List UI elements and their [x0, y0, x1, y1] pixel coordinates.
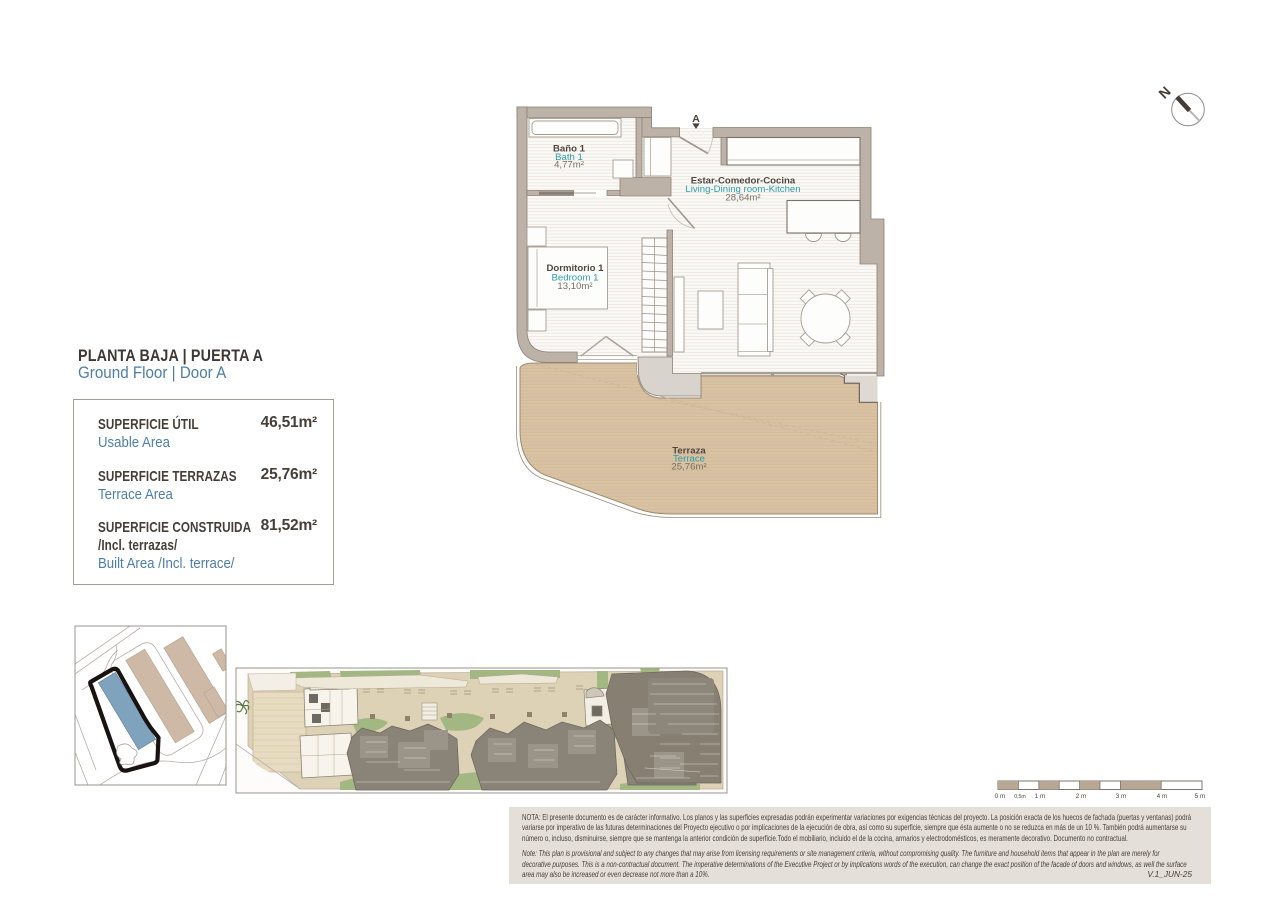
- svg-text:0 m: 0 m: [995, 793, 1006, 800]
- svg-text:25,76m²: 25,76m²: [671, 462, 707, 473]
- svg-text:4 m: 4 m: [1157, 793, 1168, 800]
- svg-text:2 m: 2 m: [1076, 793, 1087, 800]
- svg-text:13,10m²: 13,10m²: [557, 281, 593, 292]
- svg-text:4,77m²: 4,77m²: [554, 160, 585, 171]
- svg-text:N: N: [1155, 83, 1173, 101]
- svg-text:5 m: 5 m: [1195, 793, 1206, 800]
- svg-text:3 m: 3 m: [1116, 793, 1127, 800]
- svg-text:0,5m: 0,5m: [1014, 794, 1026, 800]
- svg-text:28,64m²: 28,64m²: [725, 193, 761, 204]
- svg-text:1 m: 1 m: [1035, 793, 1046, 800]
- svg-text:A: A: [692, 113, 700, 125]
